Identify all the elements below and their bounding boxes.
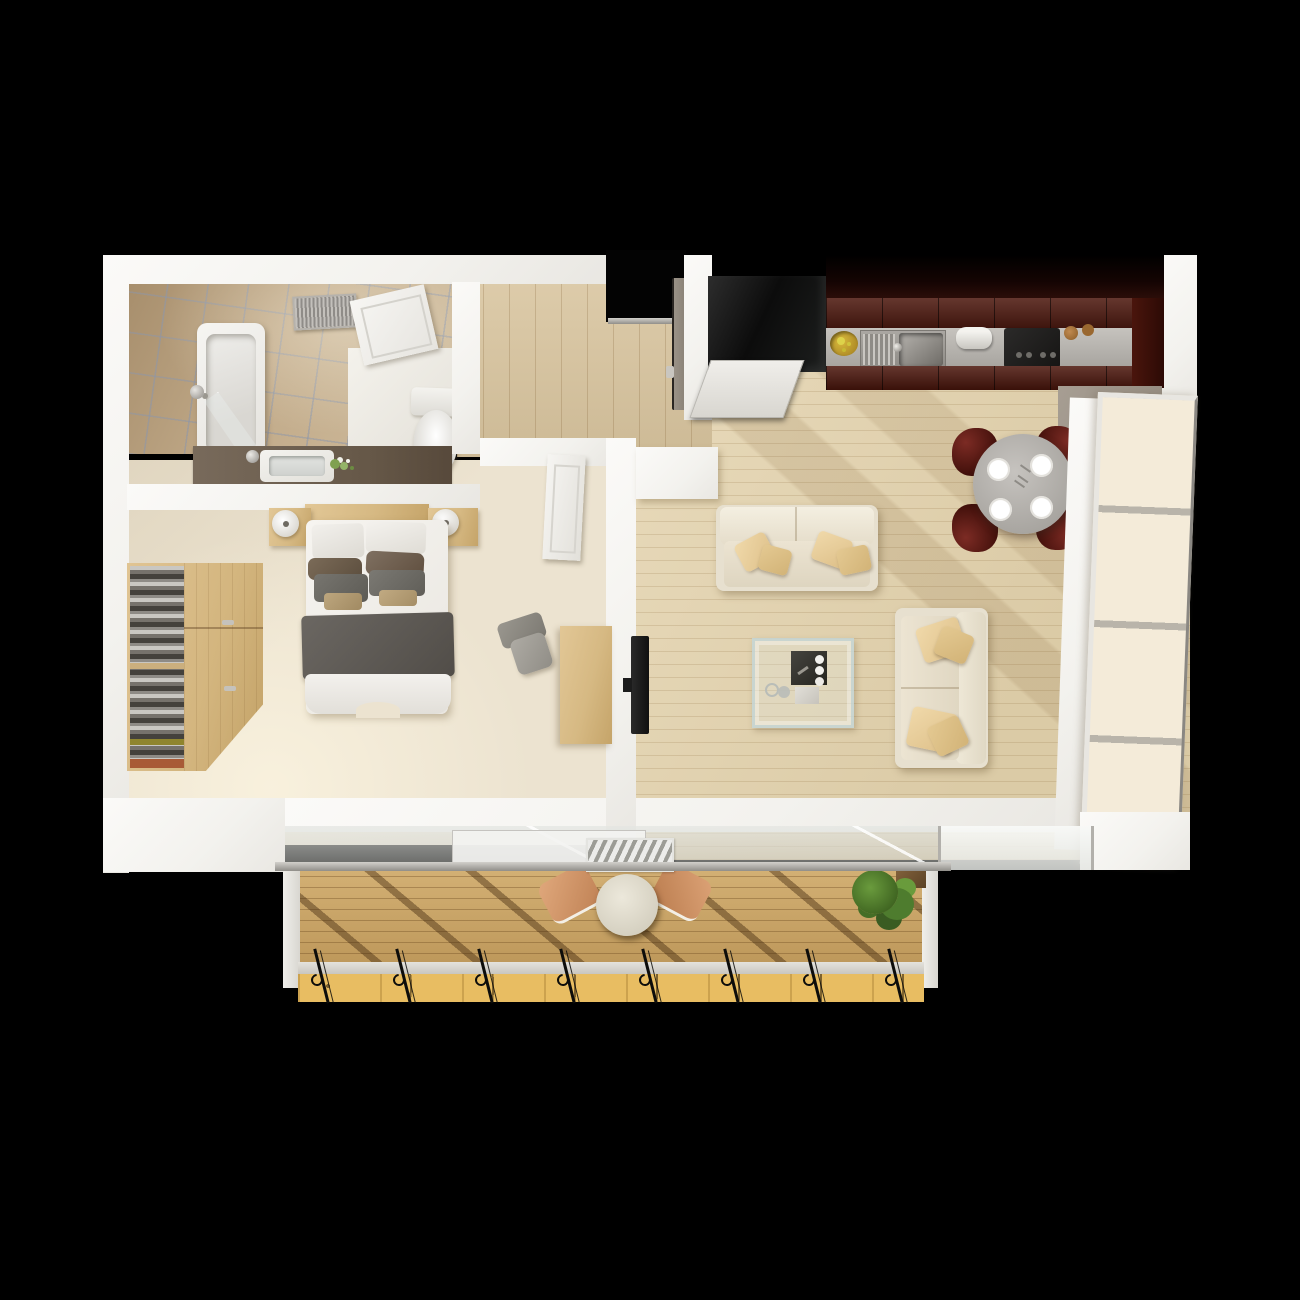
cutlery [1018,475,1029,484]
railing-baluster [313,948,329,1004]
plate [1030,454,1053,477]
bed-pillow-white-right [365,521,426,554]
floor-plan-render: .bal{top:2px;width:16px;height:56px;} .b… [0,0,1300,1300]
drinking-glasses [765,683,779,697]
lamp-left-bulb [283,521,289,527]
sofa-top-back-seam [795,507,797,545]
lemons [837,337,845,345]
sofa-top-backrest [720,507,874,545]
awning-edge-bar [275,862,951,871]
sink-drainboard [863,334,895,365]
wall-living-stub [636,447,718,499]
sofa-right [895,608,988,768]
refrigerator [708,276,828,372]
wall-bottom-left [103,798,285,872]
wall-bedroom-top [480,438,612,466]
tub-faucet [190,385,204,399]
sofa-top [716,505,878,591]
kitchen-upper-cabinets-shadowed [826,255,1164,303]
vanity-sink [260,450,334,482]
plate [987,458,1010,481]
dining-table [973,434,1073,534]
railing-baluster [805,948,821,1004]
paper-towel-roll [956,327,992,349]
cooktop [1004,328,1060,368]
wall-tv [631,636,649,734]
kitchen-tall-cabinet [1132,298,1164,388]
railing-baluster [559,948,575,1004]
ceiling-vent-grille [292,293,358,330]
bedroom-door-leaf [542,454,585,561]
window-sill-bottom-right [1080,812,1190,870]
wardrobe-shelf-divider [130,663,184,669]
tray-spoon [797,666,809,675]
railing [298,946,924,1006]
wardrobe-clothes-yellow [130,739,184,745]
railing-baluster [887,948,903,1004]
plate [1030,496,1053,519]
potted-plant [852,870,898,914]
tray-cups [815,655,824,664]
bed-pillow-tan-right [379,590,417,606]
wall-bathroom-hall [452,282,480,454]
serving-tray [791,651,827,685]
entry-door-handle [666,366,674,378]
cooktop-burners [1016,352,1022,358]
railing-baluster [395,948,411,1004]
desk [560,626,612,744]
kitchen-upper-cabinets [826,298,1164,332]
wall-top [103,255,608,284]
wall-left [103,255,129,873]
sink-basin [899,333,943,366]
fruit-bowl [830,331,858,356]
wardrobe-clothes-orange [130,759,184,768]
sink-faucet [893,343,902,352]
kitchen-sink [860,330,946,370]
bedroom-door-panel [550,464,581,553]
glass-doors-right [938,826,1094,870]
bed-pillow-tan-left [324,593,362,610]
sofa-right-seat-seam [901,687,959,689]
balcony-table [596,874,658,936]
tv-mount [623,678,632,692]
bathroom-door-panel [360,294,432,359]
vanity-flowers [330,459,340,469]
table-box [795,687,819,704]
window-panel-strip [1080,392,1198,867]
vanity-faucet [246,450,259,463]
bed-blanket-gray [301,612,455,680]
bed-pillow-white-left [311,523,364,559]
plate [989,498,1012,521]
vanity-sink-basin [269,456,325,476]
wardrobe-handle [222,620,234,625]
bed-sheet-notch [356,702,400,718]
railing-baluster [723,948,739,1004]
railing-baluster [477,948,493,1004]
railing-baluster [641,948,657,1004]
wardrobe-door-seam [184,627,263,629]
spice-mills [1064,326,1078,340]
coffee-table [752,638,854,728]
